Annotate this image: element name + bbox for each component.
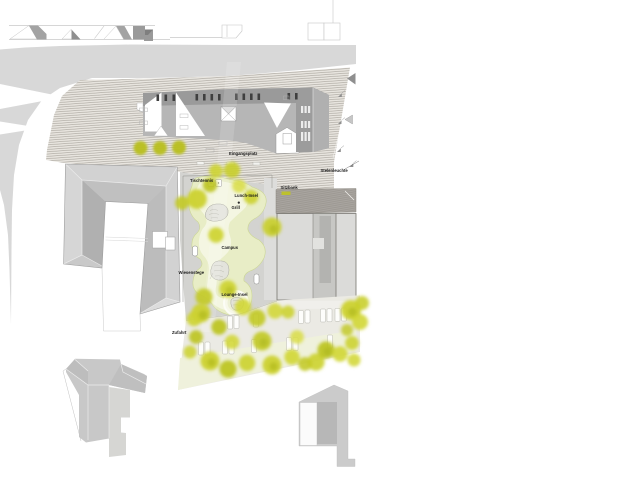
svg-text:Campus: Campus (222, 245, 239, 250)
svg-text:Grill: Grill (232, 205, 240, 210)
svg-text:Stelenleuchte: Stelenleuchte (321, 168, 349, 173)
svg-text:Lunch-Insel: Lunch-Insel (235, 193, 259, 198)
svg-text:Lounge-Insel: Lounge-Insel (222, 292, 248, 297)
svg-text:Zufahrt: Zufahrt (172, 330, 187, 335)
svg-text:Eingangsplatz: Eingangsplatz (229, 151, 257, 156)
svg-text:Wiesenstege: Wiesenstege (179, 270, 205, 275)
svg-text:Tischtennis: Tischtennis (190, 178, 214, 183)
svg-text:Sitzbank: Sitzbank (281, 185, 299, 190)
